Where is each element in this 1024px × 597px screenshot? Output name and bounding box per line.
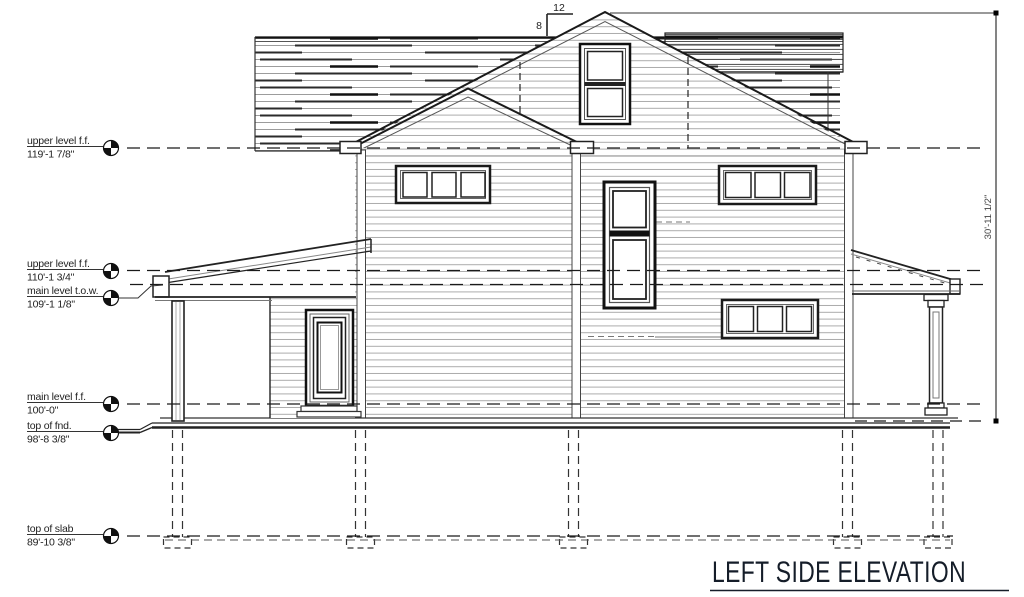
- drawing-title: LEFT SIDE ELEVATION: [712, 556, 966, 589]
- right-porch: [851, 250, 960, 415]
- level-marker-icon: [104, 141, 119, 156]
- left-porch-roof: [153, 239, 371, 301]
- level-elevation: 98'-8 3/8": [27, 434, 70, 446]
- left-porch: [153, 239, 371, 421]
- level-elevation: 109'-1 1/8": [27, 299, 75, 311]
- upper-left-window: [396, 166, 490, 203]
- porch-post-left: [172, 301, 184, 421]
- porch-post-right: [924, 295, 948, 416]
- gable-attic-window: [580, 44, 630, 124]
- level-marker-icon: [104, 529, 119, 544]
- lower-right-window: [722, 300, 818, 338]
- level-label-upper-ff-110: upper level f.f. 110'-1 3/4": [27, 258, 119, 284]
- level-marker-icon: [104, 397, 119, 412]
- door-glass: [318, 323, 342, 393]
- foundation: [118, 423, 950, 433]
- level-label-top-of-fnd: top of fnd. 98'-8 3/8": [27, 420, 119, 446]
- entry-door: [306, 310, 353, 406]
- footing-outlines: [164, 537, 953, 548]
- porch-fascia-end: [153, 276, 169, 297]
- level-elevation: 100'-0": [27, 405, 59, 417]
- elevation-drawing: 30'-11 1/2" 12 8 upper level f.f. 119'-1…: [0, 0, 1024, 597]
- dim-tick-bottom: [994, 419, 999, 424]
- level-name: top of slab: [27, 523, 74, 535]
- level-marker-icon: [104, 264, 119, 279]
- level-label-upper-ff-119: upper level f.f. 119'-1 7/8": [27, 135, 119, 161]
- post-panel: [933, 312, 939, 398]
- level-marker-icon: [104, 291, 119, 306]
- level-elevation: 110'-1 3/4": [27, 272, 75, 284]
- porch-fascia-end: [950, 279, 960, 294]
- door-steps: [297, 406, 361, 417]
- level-name: upper level f.f.: [27, 135, 90, 147]
- footings: [164, 430, 953, 548]
- drawing-title-block: LEFT SIDE ELEVATION: [710, 556, 1009, 591]
- level-marker-icon: [104, 426, 119, 441]
- pier-hidden-lines: [173, 430, 944, 537]
- level-label-main-ff: main level f.f. 100'-0": [27, 391, 119, 417]
- lower-sash: [613, 240, 646, 299]
- level-label-top-of-slab: top of slab 89'-10 3/8": [27, 523, 119, 549]
- upper-right-window: [719, 166, 816, 204]
- level-name: top of fnd.: [27, 420, 72, 432]
- meeting-rail: [585, 82, 626, 86]
- level-label-main-tow: main level t.o.w. 109'-1 1/8": [27, 285, 163, 311]
- dimension-text: 30'-11 1/2": [983, 195, 994, 240]
- level-name: upper level f.f.: [27, 258, 90, 270]
- level-labels: upper level f.f. 119'-1 7/8" upper level…: [27, 135, 163, 549]
- pitch-rise-label: 8: [536, 20, 542, 32]
- right-porch-roof: [851, 250, 960, 294]
- meeting-rail: [610, 231, 650, 237]
- tall-center-window: [604, 182, 655, 308]
- level-name: main level t.o.w.: [27, 285, 98, 297]
- dim-tick-top: [994, 11, 999, 16]
- upper-sash: [613, 191, 646, 228]
- elevation-sheet: 30'-11 1/2" 12 8 upper level f.f. 119'-1…: [0, 0, 1024, 597]
- level-elevation: 119'-1 7/8": [27, 149, 75, 161]
- level-name: main level f.f.: [27, 391, 86, 403]
- level-elevation: 89'-10 3/8": [27, 537, 75, 549]
- pitch-run-label: 12: [553, 2, 565, 14]
